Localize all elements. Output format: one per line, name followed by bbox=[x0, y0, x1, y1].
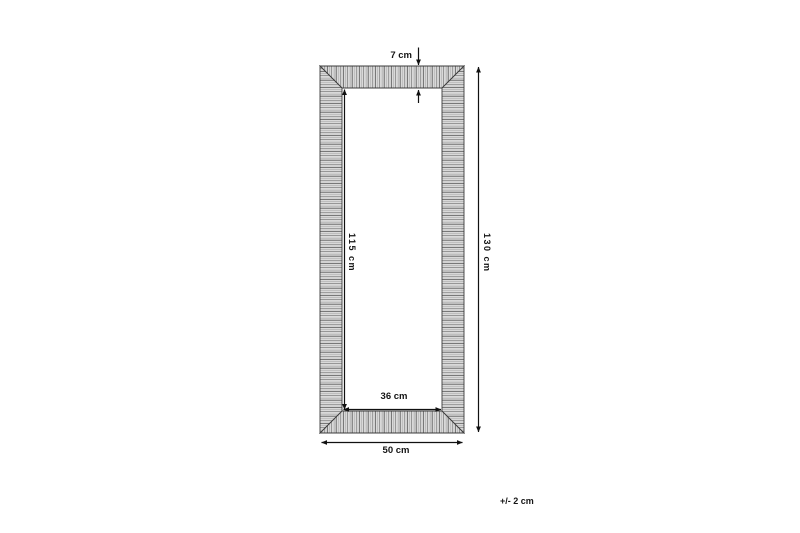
frame-right-bar bbox=[442, 66, 464, 433]
frame-left-bar bbox=[320, 66, 342, 433]
tolerance-label: +/- 2 cm bbox=[500, 496, 534, 507]
mirror-frame bbox=[320, 66, 464, 433]
outer-width-label: 50 cm bbox=[375, 445, 417, 456]
inner-height-label: 115 cm bbox=[346, 233, 357, 272]
diagram-canvas: 7 cm 115 cm 130 cm 36 cm 50 cm +/- 2 cm bbox=[0, 0, 800, 533]
frame-top-bar bbox=[320, 66, 464, 88]
outer-height-label: 130 cm bbox=[481, 233, 492, 273]
frame-width-label: 7 cm bbox=[382, 50, 412, 61]
frame-bottom-bar bbox=[320, 411, 464, 433]
inner-width-label: 36 cm bbox=[374, 391, 414, 402]
